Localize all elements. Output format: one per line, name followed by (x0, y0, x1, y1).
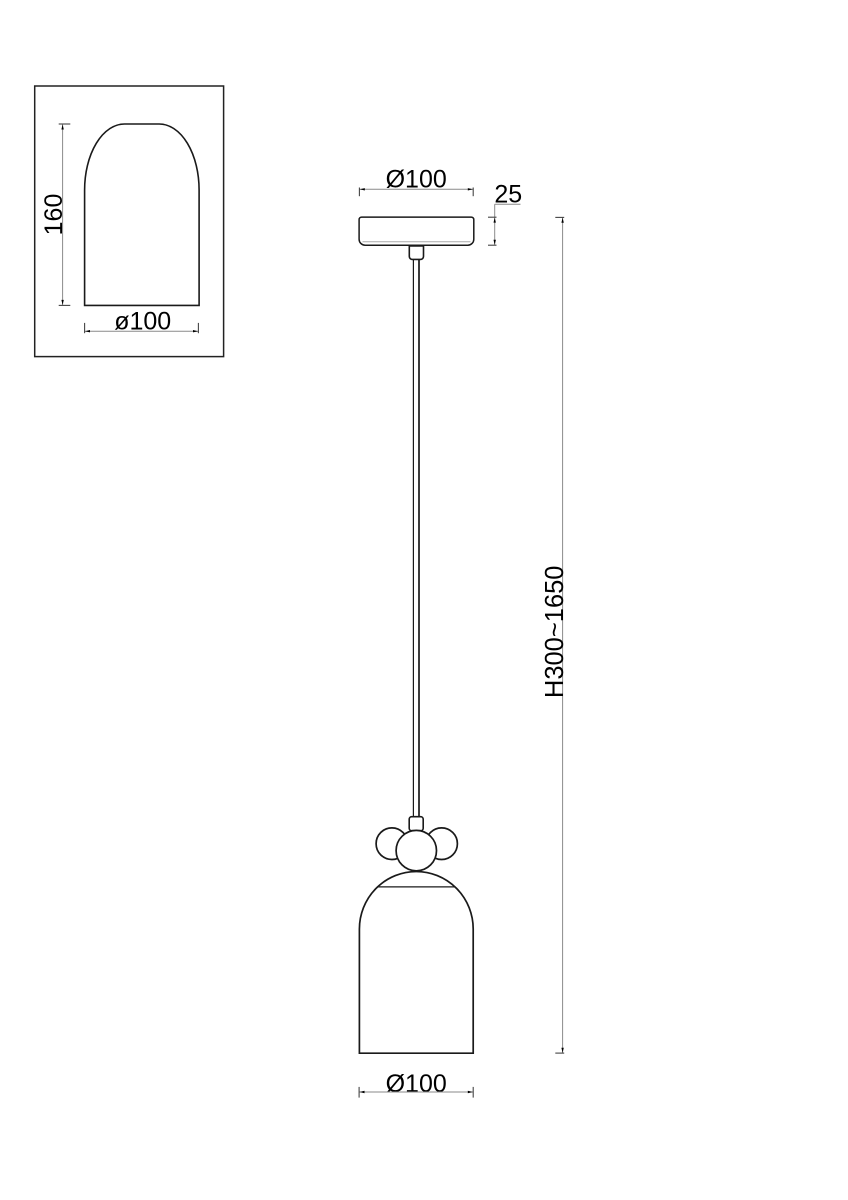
svg-text:160: 160 (40, 194, 68, 236)
svg-text:ø100: ø100 (114, 308, 171, 336)
svg-text:Ø100: Ø100 (386, 1070, 447, 1098)
svg-text:H300~1650: H300~1650 (541, 566, 569, 699)
